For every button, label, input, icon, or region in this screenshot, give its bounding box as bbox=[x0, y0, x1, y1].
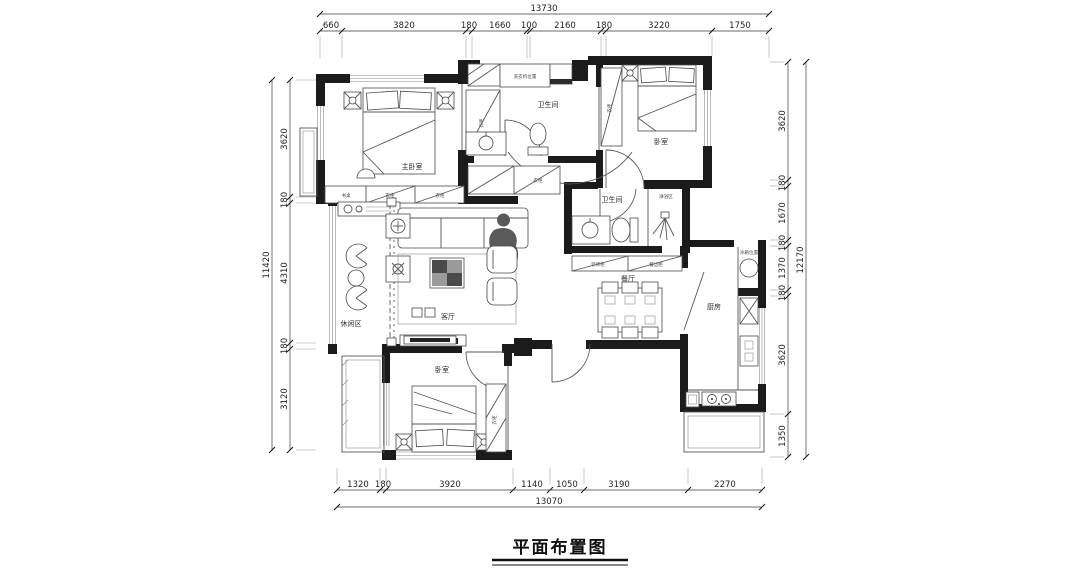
toilet-tank bbox=[528, 147, 548, 155]
room-bathroom-top: 洗衣机位置 衣柜 卫生间 bbox=[466, 64, 572, 155]
room-label-bathroom-top: 卫生间 bbox=[538, 100, 559, 109]
chair-icon bbox=[602, 282, 618, 293]
toilet-icon bbox=[612, 218, 630, 242]
dim-left-4: 3120 bbox=[280, 388, 290, 410]
dim-left-total: 11420 bbox=[262, 251, 272, 278]
label-washer: 洗衣机位置 bbox=[514, 73, 537, 80]
dim-top-7: 3220 bbox=[648, 21, 670, 31]
dim-left-1: 180 bbox=[280, 192, 290, 208]
shower-icon bbox=[661, 212, 669, 218]
floor-plan-page: 13730 660 3820 180 1660 100 2160 180 322… bbox=[0, 0, 1074, 576]
dim-chain-bottom: 1320 180 3920 1140 1050 3190 2270 13070 bbox=[334, 468, 765, 510]
dim-right-3: 180 bbox=[778, 235, 788, 251]
dim-right-total: 12170 bbox=[796, 246, 806, 273]
dim-chain-top: 13730 660 3820 180 1660 100 2160 180 322… bbox=[317, 4, 772, 58]
page-title: 平面布置图 bbox=[513, 537, 608, 558]
chair-icon bbox=[622, 327, 638, 338]
small-appliance bbox=[686, 392, 699, 407]
dim-bottom-1: 180 bbox=[375, 480, 391, 490]
dim-bottom-4: 1050 bbox=[556, 480, 578, 490]
dim-right-1: 180 bbox=[778, 175, 788, 191]
toilet-icon bbox=[530, 123, 546, 145]
label-fridge: 冰箱位置 bbox=[740, 249, 759, 256]
dim-right-4: 1370 bbox=[778, 257, 788, 279]
balcony-top-left bbox=[300, 128, 317, 196]
dim-top-total: 13730 bbox=[530, 4, 557, 14]
dim-bottom-0: 1320 bbox=[347, 480, 369, 490]
label-sideboard: 餐边柜 bbox=[649, 261, 663, 268]
dim-bottom-3: 1140 bbox=[521, 480, 543, 490]
dim-top-5: 2160 bbox=[554, 21, 576, 31]
round-table-icon bbox=[348, 270, 364, 286]
room-label-bedroom-right: 卧室 bbox=[654, 137, 668, 146]
room-bedroom-bottom: 卧室 衣柜 bbox=[396, 336, 506, 452]
dim-bottom-2: 3920 bbox=[439, 480, 461, 490]
dim-right-7: 1350 bbox=[778, 425, 788, 447]
dim-left-3: 180 bbox=[280, 338, 290, 354]
hall-wardrobes: 衣柜 bbox=[468, 166, 560, 194]
stool bbox=[412, 308, 422, 317]
chair-icon bbox=[642, 282, 658, 293]
label-decor-cabinet: 装饰柜 bbox=[591, 261, 605, 268]
room-label-bathroom-mid: 卫生间 bbox=[602, 195, 623, 204]
label-wardrobe: 衣柜 bbox=[478, 118, 485, 128]
sink-counter bbox=[572, 216, 610, 244]
person-figure bbox=[497, 214, 510, 227]
dining-table-icon bbox=[598, 288, 662, 332]
dim-top-2: 180 bbox=[461, 21, 477, 31]
chair-icon bbox=[602, 327, 618, 338]
dim-right-0: 3620 bbox=[778, 110, 788, 132]
dim-chain-left: 11420 3620 180 4310 180 3120 bbox=[262, 77, 316, 453]
counter-box bbox=[740, 336, 758, 366]
label-desk: 书桌 bbox=[341, 192, 351, 199]
dim-bottom-total: 13070 bbox=[535, 497, 562, 507]
armchair-icon bbox=[487, 278, 517, 305]
title-block: 平面布置图 bbox=[492, 537, 628, 565]
dim-right-6: 3620 bbox=[778, 344, 788, 366]
dim-top-8: 1750 bbox=[729, 21, 751, 31]
room-bathroom-mid: 卫生间 淋浴区 装饰柜 餐边柜 bbox=[572, 193, 682, 271]
dim-left-2: 4310 bbox=[280, 262, 290, 284]
tv-icon bbox=[410, 338, 450, 342]
dim-top-4: 100 bbox=[521, 21, 537, 31]
room-label-shower: 淋浴区 bbox=[659, 193, 673, 200]
dim-top-6: 180 bbox=[596, 21, 612, 31]
room-label-master-bedroom: 主卧室 bbox=[402, 162, 423, 171]
dim-right-2: 1670 bbox=[778, 202, 788, 224]
floor-plan-drawing: 13730 660 3820 180 1660 100 2160 180 322… bbox=[0, 0, 1074, 576]
chair-icon bbox=[642, 327, 658, 338]
sideboard-cabinet bbox=[572, 256, 682, 271]
fridge-icon bbox=[740, 259, 758, 277]
dim-top-3: 1660 bbox=[489, 21, 511, 31]
dim-right-5: 180 bbox=[778, 285, 788, 301]
armchair-icon bbox=[487, 246, 517, 273]
room-kitchen: 厨房 冰箱位置 bbox=[684, 247, 764, 452]
dim-top-1: 3820 bbox=[393, 21, 415, 31]
label-wardrobe: 衣柜 bbox=[435, 192, 445, 199]
room-bedroom-right: 衣柜 卧室 bbox=[601, 65, 696, 146]
room-label-leisure: 休闲区 bbox=[341, 319, 362, 328]
balcony-bottom-left bbox=[342, 356, 384, 452]
room-label-kitchen: 厨房 bbox=[707, 302, 721, 311]
stool bbox=[425, 308, 435, 317]
toilet-tank bbox=[630, 218, 638, 242]
label-wardrobe: 衣柜 bbox=[606, 103, 613, 113]
label-wardrobe: 衣柜 bbox=[533, 177, 543, 184]
chair-icon bbox=[622, 282, 638, 293]
room-master-bedroom: 主卧室 书桌 衣柜 衣柜 bbox=[325, 88, 464, 203]
dim-top-0: 660 bbox=[323, 21, 339, 31]
room-label-living: 客厅 bbox=[441, 312, 455, 321]
room-dining-room: 餐厅 bbox=[598, 274, 662, 338]
service-balcony bbox=[684, 412, 764, 452]
room-label-bedroom-bottom: 卧室 bbox=[435, 365, 449, 374]
label-wardrobe: 衣柜 bbox=[491, 415, 498, 425]
room-living-room: 客厅 bbox=[386, 208, 528, 346]
dim-bottom-6: 2270 bbox=[714, 480, 736, 490]
dim-chain-right: 3620 180 1670 180 1370 180 3620 1350 121… bbox=[770, 59, 809, 460]
dim-left-0: 3620 bbox=[280, 128, 290, 150]
dim-bottom-5: 3190 bbox=[608, 480, 630, 490]
